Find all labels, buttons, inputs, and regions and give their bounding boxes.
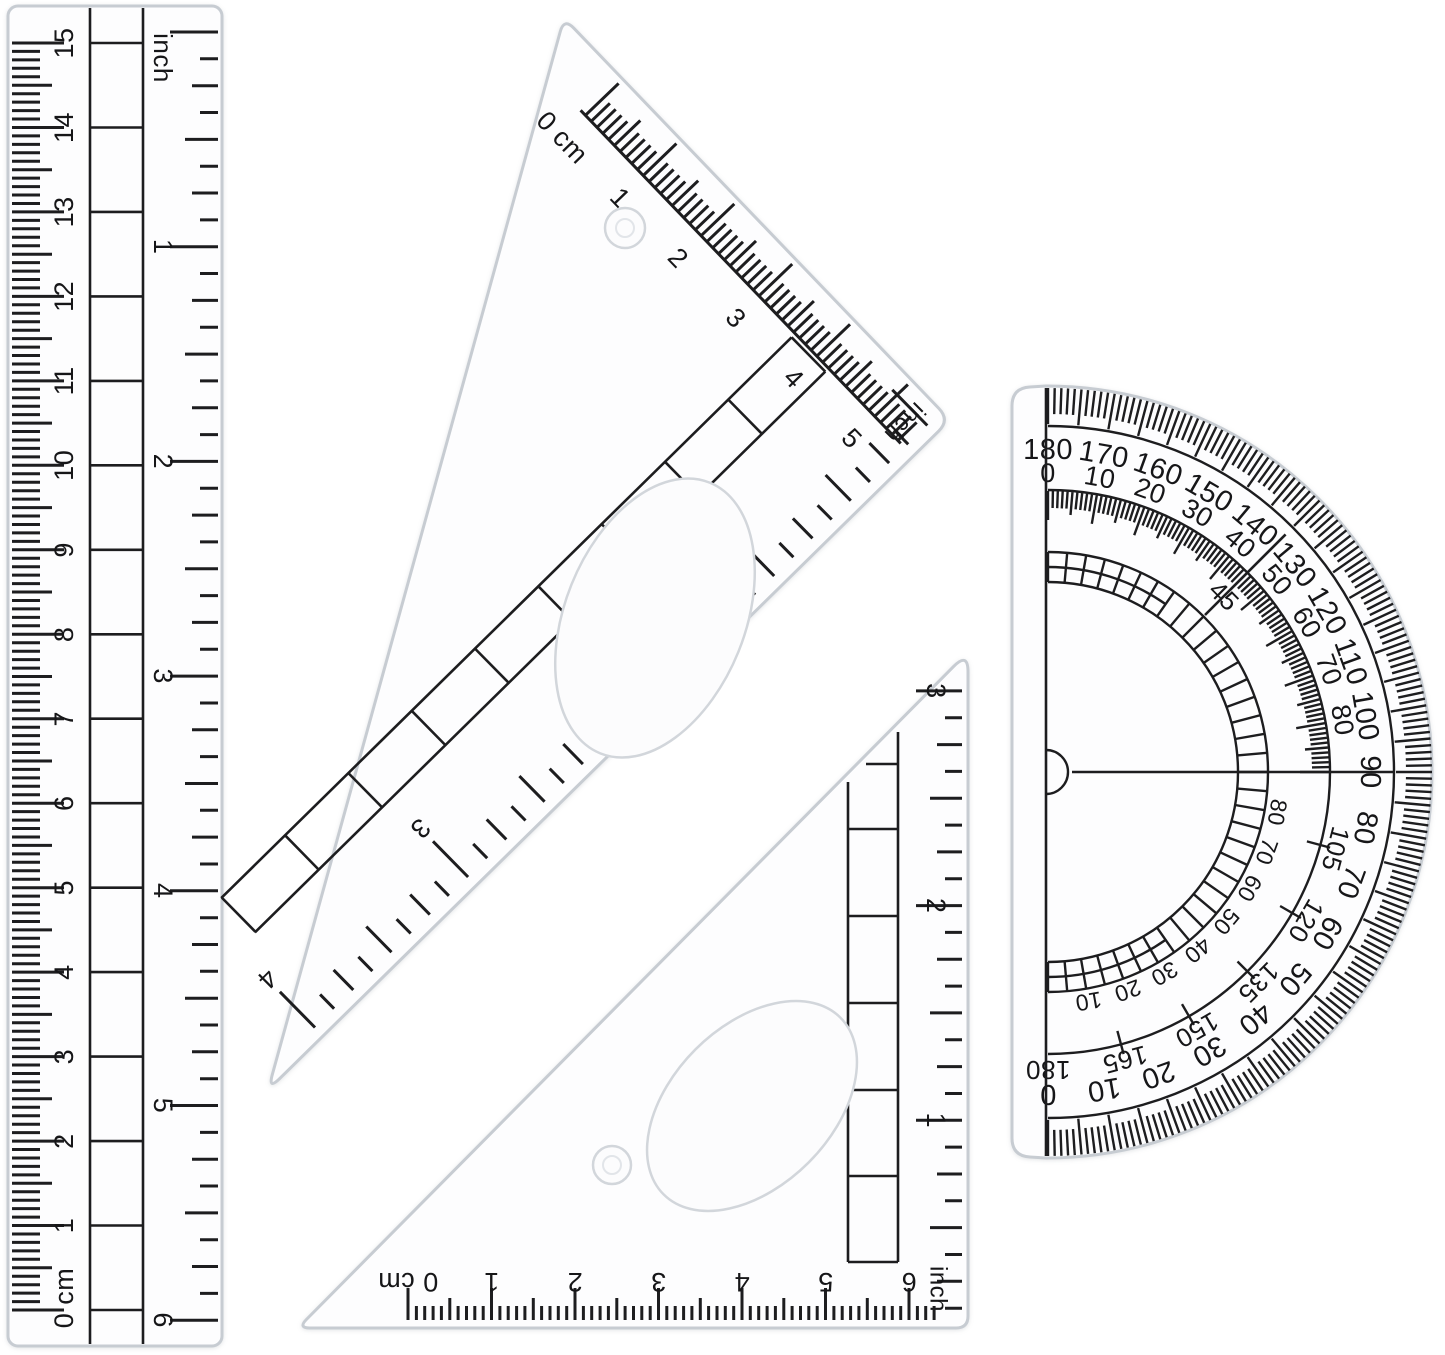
ruler-cm-number: 5 [49, 880, 79, 896]
ruler-inch-number: 1 [148, 239, 178, 255]
scene-svg: 0 cm123456789101112131415inch1234560 cm1… [0, 0, 1445, 1355]
triangle-cm-number: 0 cm [378, 1267, 439, 1297]
ruler-cm-number: 14 [49, 112, 79, 143]
ruler-cm-number: 7 [49, 711, 79, 727]
ruler-cm-number: 10 [49, 450, 79, 481]
ruler-cm-number: 1 [49, 1218, 79, 1234]
ruler-cm-number: 9 [49, 542, 79, 558]
pin-hole [605, 208, 645, 248]
triangle-inch-number: 4 [251, 963, 283, 995]
ruler-inch-number: 3 [148, 668, 178, 684]
triangle-cm-number: 3 [651, 1267, 667, 1297]
ruler-cm-number: 0 cm [49, 1268, 79, 1329]
ruler-inch-title: inch [148, 33, 178, 83]
triangle-cm-number: 6 [901, 1267, 917, 1297]
triangle-cm-number: 2 [567, 1267, 583, 1297]
ruler-cm-number: 11 [49, 366, 79, 395]
ruler-inch-number: 2 [148, 454, 178, 470]
ruler-cm-number: 4 [49, 964, 79, 980]
protractor-ladder-number: 80 [1262, 797, 1292, 828]
ruler-cm-number: 12 [49, 281, 79, 312]
protractor: 1801701601501401301201101009080706050403… [1012, 386, 1432, 1158]
protractor-inner-number: 80 [1325, 702, 1360, 738]
protractor-inner-number: 0 [1040, 458, 1056, 488]
protractor-inner-number: 180 [1026, 1055, 1071, 1085]
ruler-cm-number: 2 [49, 1133, 79, 1149]
triangle-inch-number: 3 [921, 683, 951, 699]
protractor-ladder-number: 10 [1073, 986, 1104, 1016]
ruler-cm-number: 3 [49, 1049, 79, 1065]
ruler-cm-number: 8 [49, 627, 79, 643]
protractor-inner-number: 10 [1082, 460, 1118, 495]
triangle-inch-number: 2 [921, 898, 951, 914]
ruler: 0 cm123456789101112131415inch123456 [8, 6, 222, 1346]
triangle-cm-number: 1 [484, 1267, 500, 1297]
pin-hole [593, 1146, 631, 1184]
geometry-set-photo: 0 cm123456789101112131415inch1234560 cm1… [0, 0, 1445, 1355]
ruler-inch-number: 4 [148, 883, 178, 899]
ruler-inch-number: 5 [148, 1098, 178, 1114]
ruler-cm-number: 13 [49, 196, 79, 227]
ruler-inch-number: 6 [148, 1312, 178, 1328]
triangle-cm-number: 5 [818, 1267, 834, 1297]
triangle-inch-title: inch [925, 1266, 952, 1312]
ruler-cm-number: 6 [49, 795, 79, 811]
ruler-cm-number: 15 [49, 27, 79, 58]
triangle-cm-number: 4 [734, 1267, 750, 1297]
triangle-inch-number: 1 [921, 1113, 951, 1129]
